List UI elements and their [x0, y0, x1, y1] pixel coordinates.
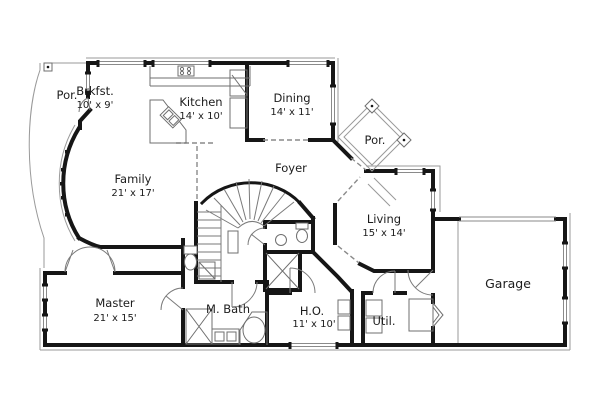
dims-breakfast: 10' x 9' — [77, 100, 114, 111]
dims-home-office: 11' x 10' — [292, 319, 335, 330]
label-garage: Garage — [485, 276, 531, 291]
label-kitchen: Kitchen — [179, 95, 222, 109]
label-utility: Util. — [373, 314, 396, 328]
porch-column-marker — [44, 63, 52, 71]
dims-living: 15' x 14' — [362, 228, 405, 239]
floor-plan-drawing: Por. Brkfst. 10' x 9' Kitchen 14' x 10' … — [0, 0, 600, 401]
kitchen-corner-sink-icon — [160, 107, 181, 128]
dims-family: 21' x 17' — [111, 188, 154, 199]
label-dining: Dining — [273, 91, 310, 105]
label-family: Family — [114, 172, 151, 186]
round-sink-icon — [276, 235, 287, 246]
label-home-office: H.O. — [300, 304, 324, 318]
water-heater-closet — [409, 299, 443, 331]
floor-plan-page: Por. Brkfst. 10' x 9' Kitchen 14' x 10' … — [0, 0, 600, 401]
range-cooktop-icon — [178, 66, 194, 76]
label-living: Living — [367, 212, 401, 226]
dims-kitchen: 14' x 10' — [179, 111, 222, 122]
room-labels: Por. Brkfst. 10' x 9' Kitchen 14' x 10' … — [57, 84, 532, 330]
bathtub-icon — [240, 312, 267, 345]
label-porch-left: Por. — [57, 88, 78, 102]
utility-fixtures — [338, 221, 458, 343]
label-master: Master — [95, 296, 135, 310]
curved-staircase — [197, 179, 300, 282]
label-master-bath: M. Bath — [206, 302, 250, 316]
dims-master: 21' x 15' — [93, 313, 136, 324]
closet-x-icon — [266, 253, 299, 289]
label-foyer: Foyer — [275, 161, 307, 175]
label-breakfast: Brkfst. — [76, 84, 113, 98]
master-bath-fixtures — [184, 246, 267, 345]
dims-dining: 14' x 11' — [270, 107, 313, 118]
toilet-icon — [296, 223, 308, 243]
entry-porch — [338, 99, 411, 206]
toilet-icon — [184, 246, 197, 270]
label-porch-right: Por. — [365, 133, 386, 147]
vanity-icon — [212, 329, 239, 344]
